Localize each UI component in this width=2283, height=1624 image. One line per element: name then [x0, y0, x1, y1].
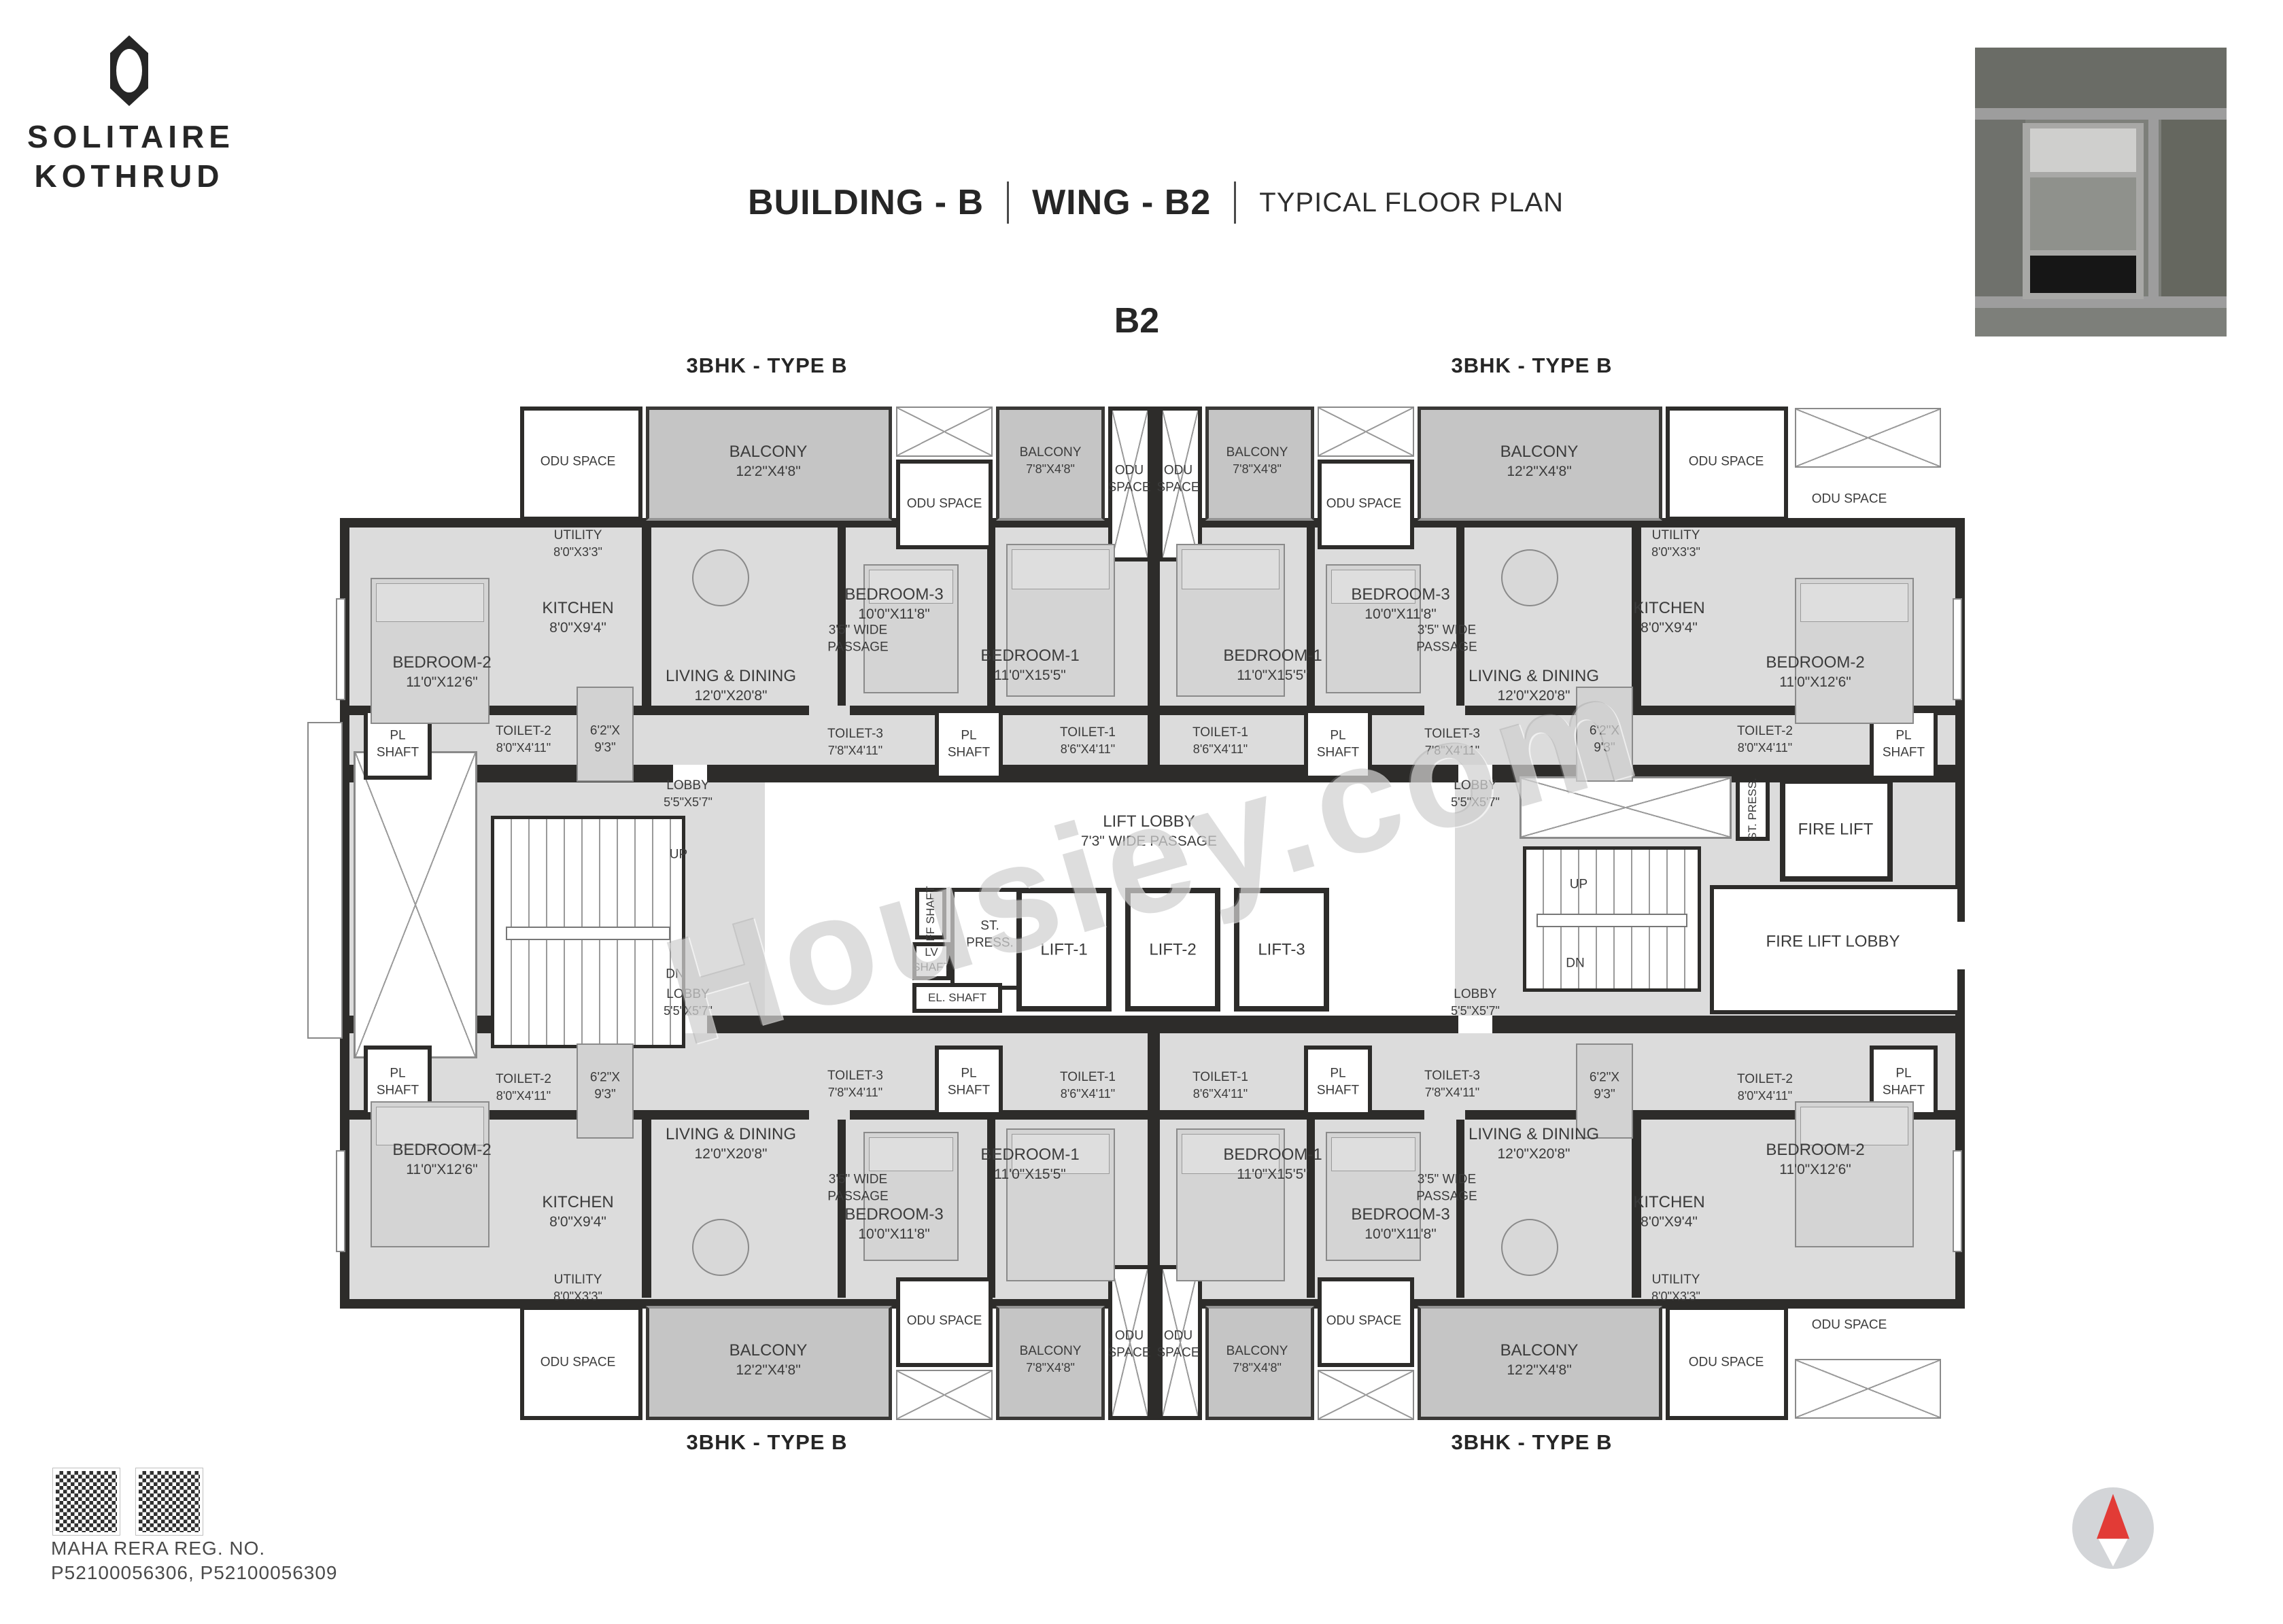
- room-label-odu: ODU SPACE: [907, 496, 982, 513]
- label-line: SHAFT: [377, 744, 419, 761]
- room-label-lobby: LOBBY5'5"X5'7": [664, 986, 713, 1019]
- room-dims: 7'8"X4'11": [827, 743, 883, 759]
- label-line: 9'3": [1590, 1086, 1619, 1103]
- label-line: 7'3" WIDE PASSAGE: [1081, 832, 1217, 850]
- label-line: 6'2"X: [590, 723, 620, 738]
- room-dims: 7'8"X4'8": [1020, 462, 1082, 477]
- room-label-passage: 3'5" WIDEPASSAGE: [1416, 622, 1477, 655]
- room-label-pl-shaft: PLSHAFT: [948, 1065, 990, 1099]
- label-line: 6'2"X: [590, 1070, 620, 1084]
- label-line: ST.: [980, 918, 999, 933]
- room-label-pl-shaft: PLSHAFT: [377, 1065, 419, 1099]
- room-name: BEDROOM-1: [980, 646, 1079, 665]
- label-line: 3'5" WIDE: [829, 1172, 887, 1186]
- duct-void: [354, 751, 477, 1058]
- room-dims: 12'0"X20'8": [1469, 687, 1599, 705]
- room-dims: 10'0"X11'8": [844, 605, 943, 623]
- room-label-toilet3: TOILET-37'8"X4'11": [1424, 726, 1480, 759]
- room-label-toilet3: TOILET-37'8"X4'11": [827, 726, 883, 759]
- label-line: PL: [961, 1066, 976, 1080]
- room-dims: 10'0"X11'8": [1351, 605, 1449, 623]
- qr-code-1: [53, 1468, 120, 1535]
- room-dims: 8'6"X4'11": [1060, 1086, 1116, 1102]
- room-label-passage: 3'5" WIDEPASSAGE: [1416, 1171, 1477, 1205]
- room-label-odu: ODU SPACE: [1152, 462, 1205, 496]
- room-label-kitchen: KITCHEN8'0"X9'4": [542, 1192, 613, 1231]
- room-dims: 8'0"X4'11": [496, 740, 551, 756]
- room-label-odu: ODU SPACE: [540, 454, 616, 471]
- room-name: LIVING & DINING: [1469, 1125, 1599, 1143]
- room-label-pl-shaft: PLSHAFT: [948, 727, 990, 761]
- room-label-balcony: BALCONY12'2"X4'8": [729, 441, 808, 481]
- label-line: SHAFT: [912, 960, 950, 975]
- room-name: LIVING & DINING: [1469, 667, 1599, 685]
- room-label-dining-nook: 6'2"X9'3": [590, 723, 620, 756]
- room-label-fire-lift: FIRE LIFT: [1798, 818, 1874, 840]
- furniture-round-table: [1501, 1219, 1558, 1276]
- room-dims: 7'8"X4'8": [1226, 462, 1288, 477]
- room-dims: 8'0"X3'3": [1651, 1289, 1700, 1305]
- label-line: SHAFT: [1317, 1082, 1359, 1099]
- label-line: SHAFT: [948, 744, 990, 761]
- room-label-bedroom2: BEDROOM-211'0"X12'6": [1766, 1139, 1864, 1179]
- label-line: LIFT LOBBY: [1103, 812, 1195, 831]
- room-label-pl-shaft: PLSHAFT: [1317, 727, 1359, 761]
- room-name: BEDROOM-1: [980, 1145, 1079, 1164]
- stair-dn-label: DN: [666, 967, 684, 984]
- stair-dn-label: DN: [1566, 956, 1584, 973]
- room-label-passage: 3'5" WIDEPASSAGE: [827, 622, 888, 655]
- window-duct: [896, 1370, 993, 1420]
- room-name: BALCONY: [1500, 1341, 1579, 1360]
- room-name: BEDROOM-3: [844, 585, 943, 604]
- wall: [642, 1120, 651, 1298]
- room-dims: 8'0"X9'4": [1633, 619, 1704, 637]
- room-label-toilet3: TOILET-37'8"X4'11": [1424, 1068, 1480, 1101]
- label-line: PASSAGE: [827, 639, 888, 656]
- room-dims: 7'8"X4'11": [827, 1085, 883, 1101]
- room-label-odu: ODU SPACE: [1152, 1328, 1205, 1361]
- room-label-odu: ODU SPACE: [1812, 491, 1887, 508]
- room-dims: 11'0"X15'5": [1223, 1165, 1322, 1184]
- room-label-bedroom3: BEDROOM-310'0"X11'8": [844, 584, 943, 623]
- label-line: PL: [1330, 1066, 1345, 1080]
- door-gap: [809, 1110, 850, 1120]
- room-dims: 12'0"X20'8": [666, 1145, 796, 1163]
- rera-numbers: P52100056306, P52100056309: [51, 1562, 338, 1584]
- label-line: LV: [925, 946, 938, 958]
- room-name: UTILITY: [1652, 528, 1700, 542]
- room-label-toilet2: TOILET-28'0"X4'11": [1737, 1071, 1793, 1104]
- room-label-toilet2: TOILET-28'0"X4'11": [496, 723, 551, 756]
- room-name: LOBBY: [666, 987, 709, 1001]
- label-line: 9'3": [590, 1086, 620, 1103]
- staircase-right: [1523, 846, 1701, 992]
- room-name: KITCHEN: [542, 599, 613, 617]
- room-dims: 8'0"X4'11": [496, 1088, 551, 1104]
- room-name: BALCONY: [729, 1341, 808, 1360]
- room-dims: 8'0"X3'3": [553, 545, 602, 560]
- ledge: [307, 722, 343, 1039]
- room-name: LOBBY: [1454, 778, 1496, 793]
- window-duct: [1795, 1359, 1941, 1419]
- party-wall: [1148, 715, 1160, 765]
- room-dims: 12'2"X4'8": [1500, 1361, 1579, 1379]
- room-label-kitchen: KITCHEN8'0"X9'4": [1633, 598, 1704, 637]
- door-gap: [1424, 1110, 1465, 1120]
- label-line: SHAFT: [948, 1082, 990, 1099]
- stair-up-label: UP: [670, 847, 687, 864]
- window: [336, 598, 345, 700]
- room-label-balcony: BALCONY12'2"X4'8": [1500, 441, 1579, 481]
- label-line: 3'5" WIDE: [829, 623, 887, 637]
- room-label-balcony: BALCONY12'2"X4'8": [729, 1340, 808, 1379]
- room-label-lobby: LOBBY5'5"X5'7": [664, 778, 713, 810]
- room-dims: 5'5"X5'7": [1451, 795, 1500, 810]
- label-line: PL: [1895, 1066, 1911, 1080]
- room-label-odu: ODU SPACE: [1103, 462, 1156, 496]
- qr-code-2: [136, 1468, 203, 1535]
- room-label-dining-nook: 6'2"X9'3": [1590, 723, 1619, 756]
- room-name: LOBBY: [1454, 987, 1496, 1001]
- staircase-left: [491, 816, 685, 1048]
- furniture-round-table: [1501, 549, 1558, 606]
- room-label-bedroom1: BEDROOM-111'0"X15'5": [980, 1144, 1079, 1184]
- room-label-utility: UTILITY8'0"X3'3": [1651, 528, 1700, 560]
- party-wall: [1148, 1120, 1160, 1265]
- wall: [642, 528, 651, 706]
- room-label-living: LIVING & DINING12'0"X20'8": [1469, 1124, 1599, 1163]
- room-label-balcony: BALCONY7'8"X4'8": [1226, 445, 1288, 477]
- room-dims: 8'6"X4'11": [1060, 742, 1116, 757]
- room-label-dining-nook: 6'2"X9'3": [1590, 1069, 1619, 1103]
- room-name: TOILET-2: [496, 724, 551, 738]
- room-label-toilet2: TOILET-28'0"X4'11": [1737, 723, 1793, 756]
- room-label-lift2: LIFT-2: [1149, 939, 1196, 960]
- room-name: TOILET-2: [1737, 724, 1793, 738]
- room-name: BEDROOM-3: [1351, 585, 1449, 604]
- room-label-toilet2: TOILET-28'0"X4'11": [496, 1071, 551, 1104]
- wall: [1456, 1120, 1464, 1298]
- room-label-odu: ODU SPACE: [907, 1313, 982, 1330]
- room-dims: 10'0"X11'8": [844, 1225, 943, 1243]
- room-label-bedroom3: BEDROOM-310'0"X11'8": [1351, 1204, 1449, 1243]
- label-line: PASSAGE: [827, 1188, 888, 1205]
- room-label-living: LIVING & DINING12'0"X20'8": [1469, 666, 1599, 705]
- window-duct: [1318, 1370, 1414, 1420]
- room-name: TOILET-3: [827, 1069, 883, 1083]
- room-name: UTILITY: [1652, 1273, 1700, 1287]
- room-name: TOILET-1: [1060, 725, 1116, 740]
- floor-plan: ODU SPACE BALCONY12'2"X4'8" ODU SPACE BA…: [0, 0, 2283, 1624]
- room-name: BALCONY: [1226, 1344, 1288, 1358]
- window: [1953, 598, 1962, 700]
- room-label-bedroom2: BEDROOM-211'0"X12'6": [1766, 652, 1864, 691]
- room-label-passage: 3'5" WIDEPASSAGE: [827, 1171, 888, 1205]
- room-name: BALCONY: [729, 443, 808, 461]
- room-label-fire-lift-lobby: FIRE LIFT LOBBY: [1766, 931, 1900, 952]
- label-line: 6'2"X: [1590, 1070, 1619, 1084]
- room-dims: 12'2"X4'8": [729, 1361, 808, 1379]
- room-name: BALCONY: [1226, 445, 1288, 460]
- room-label-dining-nook: 6'2"X9'3": [590, 1069, 620, 1103]
- room-name: TOILET-3: [1424, 727, 1480, 741]
- room-dims: 11'0"X15'5": [980, 1165, 1079, 1184]
- room-label-balcony: BALCONY7'8"X4'8": [1020, 1343, 1082, 1376]
- label-line: SHAFT: [1883, 1082, 1925, 1099]
- room-label-bedroom2: BEDROOM-211'0"X12'6": [392, 652, 491, 691]
- room-label-toilet1: TOILET-18'6"X4'11": [1192, 1069, 1248, 1102]
- room-dims: 11'0"X12'6": [392, 673, 491, 691]
- room-label-living: LIVING & DINING12'0"X20'8": [666, 666, 796, 705]
- label-line: SHAFT: [1317, 744, 1359, 761]
- room-label-balcony: BALCONY12'2"X4'8": [1500, 1340, 1579, 1379]
- room-label-lift3: LIFT-3: [1258, 939, 1305, 960]
- room-label-pl-shaft: PLSHAFT: [1883, 1065, 1925, 1099]
- room-name: BEDROOM-2: [1766, 653, 1864, 672]
- label-line: PRESS.: [966, 935, 1014, 952]
- room-name: BALCONY: [1020, 445, 1082, 460]
- room-dims: 12'2"X4'8": [1500, 462, 1579, 481]
- room-dims: 11'0"X12'6": [1766, 673, 1864, 691]
- room-name: TOILET-1: [1192, 1070, 1248, 1084]
- room-label-pl-shaft: PLSHAFT: [1883, 727, 1925, 761]
- wall: [1456, 528, 1464, 706]
- window: [336, 1150, 345, 1252]
- window-duct: [1318, 407, 1414, 457]
- room-dims: 8'0"X4'11": [1737, 740, 1793, 756]
- room-name: BEDROOM-1: [1223, 646, 1322, 665]
- room-dims: 12'0"X20'8": [666, 687, 796, 705]
- label-line: SHAFT: [377, 1082, 419, 1099]
- room-dims: 7'8"X4'8": [1226, 1360, 1288, 1376]
- window-duct: [1795, 408, 1941, 468]
- room-label-bedroom1: BEDROOM-111'0"X15'5": [980, 645, 1079, 685]
- room-dims: 11'0"X15'5": [1223, 666, 1322, 685]
- door-gap: [809, 706, 850, 715]
- room-label-odu: ODU SPACE: [540, 1355, 616, 1372]
- label-line: PL: [961, 728, 976, 742]
- room-name: BALCONY: [1020, 1344, 1082, 1358]
- window: [1953, 1150, 1962, 1252]
- room-dims: 8'6"X4'11": [1192, 742, 1248, 757]
- room-label-odu: ODU SPACE: [1326, 496, 1402, 513]
- room-dims: 8'0"X9'4": [542, 619, 613, 637]
- room-dims: 8'0"X9'4": [1633, 1213, 1704, 1231]
- label-line: 3'5" WIDE: [1418, 623, 1476, 637]
- room-name: TOILET-2: [496, 1072, 551, 1086]
- room-label-st-press-vertical: ST. PRESS.: [1745, 778, 1760, 840]
- furniture-bed: [1795, 578, 1914, 724]
- furniture-round-table: [692, 1219, 749, 1276]
- room-name: UTILITY: [554, 1273, 602, 1287]
- room-name: BEDROOM-2: [1766, 1141, 1864, 1159]
- room-label-bedroom2: BEDROOM-211'0"X12'6": [392, 1139, 491, 1179]
- room-name: BALCONY: [1500, 443, 1579, 461]
- room-name: KITCHEN: [1633, 1193, 1704, 1211]
- label-line: PL: [1330, 728, 1345, 742]
- furniture-bed: [371, 578, 490, 724]
- room-dims: 12'2"X4'8": [729, 462, 808, 481]
- room-dims: 8'0"X3'3": [553, 1289, 602, 1305]
- room-name: BEDROOM-2: [392, 653, 491, 672]
- north-compass: [2072, 1487, 2154, 1569]
- room-label-balcony: BALCONY7'8"X4'8": [1020, 445, 1082, 477]
- room-label-bedroom3: BEDROOM-310'0"X11'8": [1351, 584, 1449, 623]
- label-line: 3'5" WIDE: [1418, 1172, 1476, 1186]
- room-dims: 11'0"X12'6": [1766, 1160, 1864, 1179]
- room-label-el-shaft: EL. SHAFT: [928, 990, 986, 1005]
- room-dims: 5'5"X5'7": [664, 795, 713, 810]
- room-label-lv-shaft: LVSHAFT: [912, 945, 950, 975]
- room-label-toilet1: TOILET-18'6"X4'11": [1060, 725, 1116, 757]
- rera-label: MAHA RERA REG. NO.: [51, 1538, 265, 1559]
- room-dims: 5'5"X5'7": [1451, 1003, 1500, 1019]
- room-label-lift1: LIFT-1: [1040, 939, 1087, 960]
- stair-up-label: UP: [1570, 877, 1587, 894]
- room-name: BEDROOM-2: [392, 1141, 491, 1159]
- room-label-lift-lobby: LIFT LOBBY7'3" WIDE PASSAGE: [1081, 811, 1217, 850]
- furniture-round-table: [692, 549, 749, 606]
- room-label-lobby: LOBBY5'5"X5'7": [1451, 986, 1500, 1019]
- room-name: UTILITY: [554, 528, 602, 542]
- room-label-kitchen: KITCHEN8'0"X9'4": [1633, 1192, 1704, 1231]
- room-label-balcony: BALCONY7'8"X4'8": [1226, 1343, 1288, 1376]
- room-label-odu: ODU SPACE: [1326, 1313, 1402, 1330]
- room-label-toilet1: TOILET-18'6"X4'11": [1060, 1069, 1116, 1102]
- room-dims: 11'0"X12'6": [392, 1160, 491, 1179]
- room-name: LOBBY: [666, 778, 709, 793]
- room-dims: 7'8"X4'8": [1020, 1360, 1082, 1376]
- window-duct: [896, 407, 993, 457]
- room-name: LIVING & DINING: [666, 1125, 796, 1143]
- room-label-kitchen: KITCHEN8'0"X9'4": [542, 598, 613, 637]
- party-wall: [1148, 562, 1160, 706]
- room-label-st-press: ST.PRESS.: [966, 918, 1014, 951]
- room-name: TOILET-3: [827, 727, 883, 741]
- label-line: PL: [390, 1066, 405, 1080]
- label-line: PASSAGE: [1416, 1188, 1477, 1205]
- room-dims: 11'0"X15'5": [980, 666, 1079, 685]
- room-name: BEDROOM-3: [1351, 1205, 1449, 1224]
- label-line: PASSAGE: [1416, 639, 1477, 656]
- room-label-odu: ODU SPACE: [1689, 454, 1764, 471]
- room-label-toilet3: TOILET-37'8"X4'11": [827, 1068, 883, 1101]
- room-name: TOILET-2: [1737, 1072, 1793, 1086]
- room-label-bedroom1: BEDROOM-111'0"X15'5": [1223, 645, 1322, 685]
- party-wall: [1148, 1033, 1160, 1110]
- room-label-bedroom1: BEDROOM-111'0"X15'5": [1223, 1144, 1322, 1184]
- room-label-utility: UTILITY8'0"X3'3": [1651, 1272, 1700, 1305]
- room-name: TOILET-3: [1424, 1069, 1480, 1083]
- room-label-pl-shaft: PLSHAFT: [377, 727, 419, 761]
- room-label-odu: ODU SPACE: [1103, 1328, 1156, 1361]
- exit-gap: [1954, 922, 1965, 969]
- room-dims: 5'5"X5'7": [664, 1003, 713, 1019]
- room-name: TOILET-1: [1060, 1070, 1116, 1084]
- room-label-living: LIVING & DINING12'0"X20'8": [666, 1124, 796, 1163]
- room-label-bedroom3: BEDROOM-310'0"X11'8": [844, 1204, 943, 1243]
- room-name: LIVING & DINING: [666, 667, 796, 685]
- room-name: TOILET-1: [1192, 725, 1248, 740]
- room-name: BEDROOM-3: [844, 1205, 943, 1224]
- duct-void: [1520, 776, 1732, 839]
- room-dims: 10'0"X11'8": [1351, 1225, 1449, 1243]
- room-label-odu: ODU SPACE: [1812, 1317, 1887, 1334]
- room-label-utility: UTILITY8'0"X3'3": [553, 528, 602, 560]
- room-dims: 8'6"X4'11": [1192, 1086, 1248, 1102]
- room-dims: 8'0"X9'4": [542, 1213, 613, 1231]
- room-dims: 8'0"X4'11": [1737, 1088, 1793, 1104]
- door-gap: [1424, 706, 1465, 715]
- room-label-toilet1: TOILET-18'6"X4'11": [1192, 725, 1248, 757]
- label-line: 9'3": [590, 740, 620, 757]
- label-line: SHAFT: [1883, 744, 1925, 761]
- room-name: KITCHEN: [542, 1193, 613, 1211]
- room-name: KITCHEN: [1633, 599, 1704, 617]
- label-line: PL: [1895, 728, 1911, 742]
- room-name: BEDROOM-1: [1223, 1145, 1322, 1164]
- label-line: 6'2"X: [1590, 723, 1619, 738]
- room-dims: 8'0"X3'3": [1651, 545, 1700, 560]
- room-label-lobby: LOBBY5'5"X5'7": [1451, 778, 1500, 810]
- room-label-utility: UTILITY8'0"X3'3": [553, 1272, 602, 1305]
- room-dims: 7'8"X4'11": [1424, 1085, 1480, 1101]
- room-label-ff-shaft: FF SHAFT: [923, 886, 938, 941]
- room-dims: 7'8"X4'11": [1424, 743, 1480, 759]
- room-label-pl-shaft: PLSHAFT: [1317, 1065, 1359, 1099]
- label-line: 9'3": [1590, 740, 1619, 757]
- room-label-odu: ODU SPACE: [1689, 1355, 1764, 1372]
- room-dims: 12'0"X20'8": [1469, 1145, 1599, 1163]
- label-line: PL: [390, 728, 405, 742]
